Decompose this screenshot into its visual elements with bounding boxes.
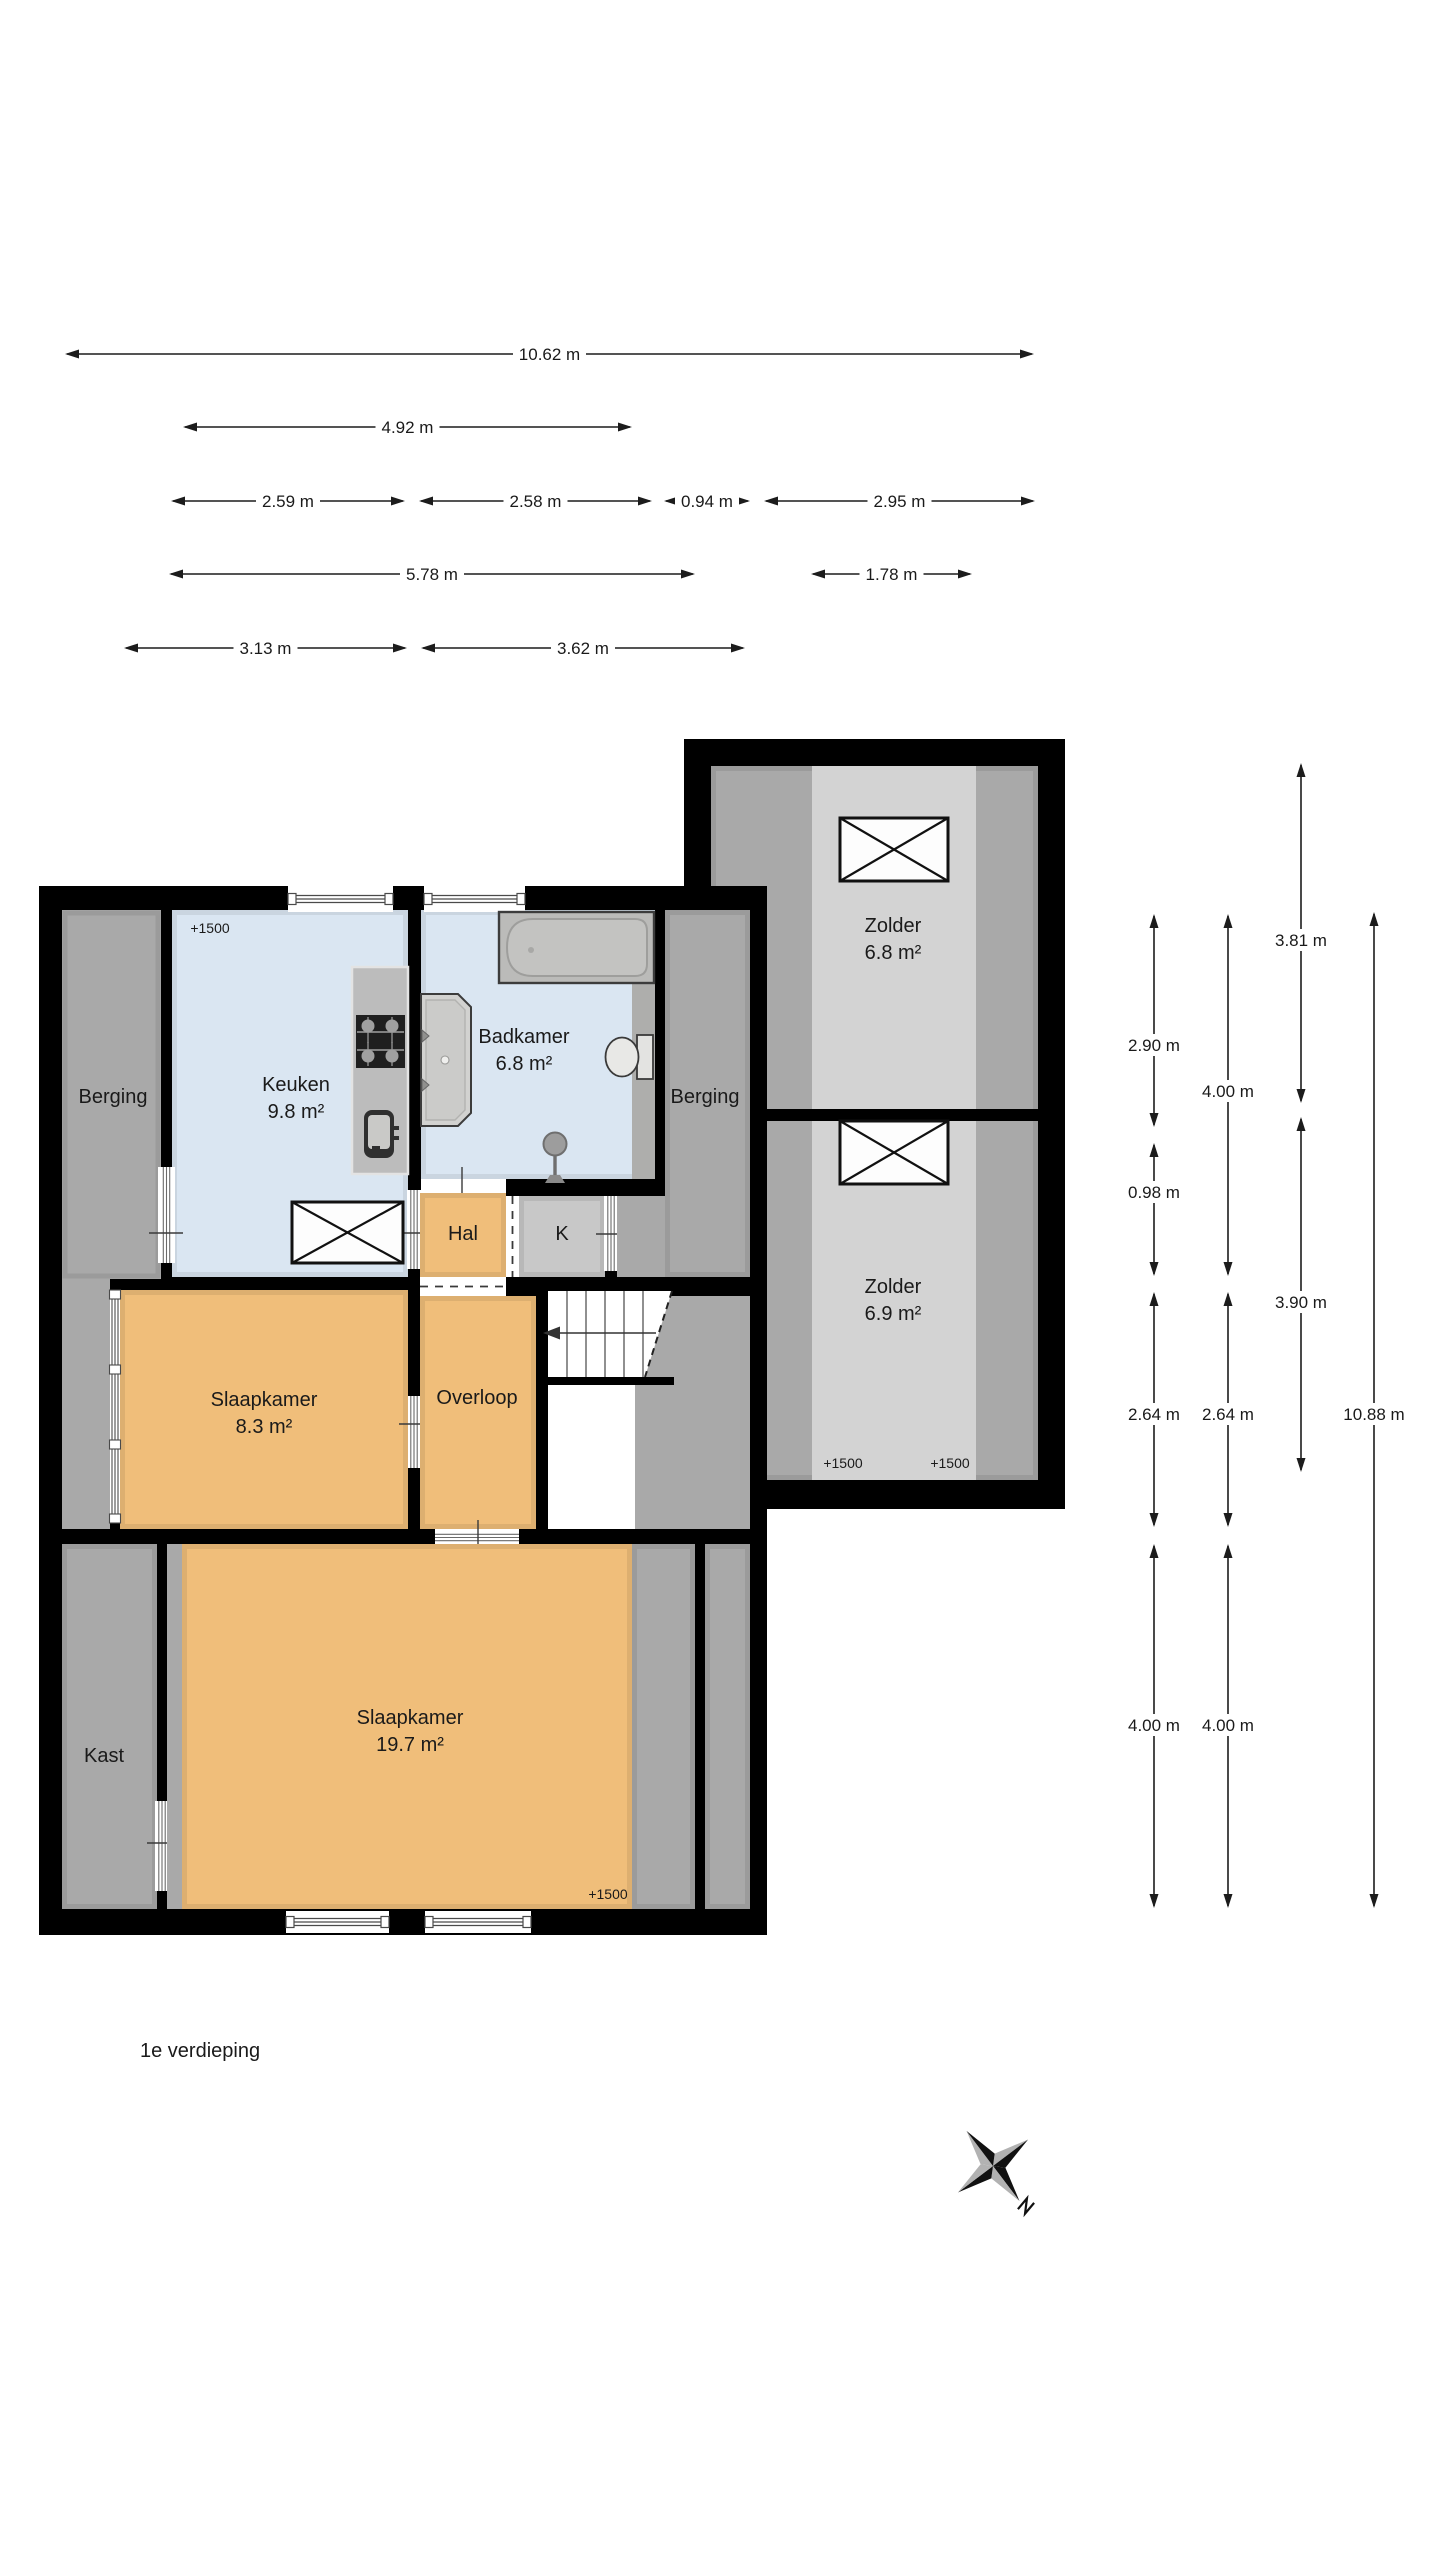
svg-text:4.00 m: 4.00 m xyxy=(1202,1716,1254,1735)
svg-text:Badkamer: Badkamer xyxy=(478,1026,569,1048)
svg-text:4.00 m: 4.00 m xyxy=(1128,1716,1180,1735)
svg-text:6.9 m²: 6.9 m² xyxy=(865,1303,922,1325)
svg-text:Slaapkamer: Slaapkamer xyxy=(357,1707,464,1729)
svg-text:3.90 m: 3.90 m xyxy=(1275,1293,1327,1312)
svg-text:10.88 m: 10.88 m xyxy=(1343,1405,1404,1424)
svg-text:Slaapkamer: Slaapkamer xyxy=(211,1389,318,1411)
svg-text:4.00 m: 4.00 m xyxy=(1202,1082,1254,1101)
svg-text:0.94 m: 0.94 m xyxy=(681,492,733,511)
svg-text:1.78 m: 1.78 m xyxy=(866,565,918,584)
svg-text:3.13 m: 3.13 m xyxy=(240,639,292,658)
svg-text:3.62 m: 3.62 m xyxy=(557,639,609,658)
svg-text:K: K xyxy=(555,1223,569,1245)
svg-text:8.3 m²: 8.3 m² xyxy=(236,1416,293,1438)
svg-text:+1500: +1500 xyxy=(588,1886,628,1902)
svg-text:5.78 m: 5.78 m xyxy=(406,565,458,584)
svg-text:+1500: +1500 xyxy=(823,1455,863,1471)
svg-text:3.81 m: 3.81 m xyxy=(1275,931,1327,950)
svg-text:+1500: +1500 xyxy=(930,1455,970,1471)
svg-text:10.62 m: 10.62 m xyxy=(519,345,580,364)
svg-text:4.92 m: 4.92 m xyxy=(382,418,434,437)
svg-text:2.59 m: 2.59 m xyxy=(262,492,314,511)
svg-text:2.58 m: 2.58 m xyxy=(510,492,562,511)
svg-text:+1500: +1500 xyxy=(190,920,230,936)
svg-text:6.8 m²: 6.8 m² xyxy=(865,942,922,964)
svg-text:2.95 m: 2.95 m xyxy=(874,492,926,511)
svg-text:Overloop: Overloop xyxy=(436,1387,517,1409)
svg-text:Keuken: Keuken xyxy=(262,1074,330,1096)
svg-text:Berging: Berging xyxy=(79,1086,148,1108)
svg-text:0.98 m: 0.98 m xyxy=(1128,1183,1180,1202)
svg-text:2.64 m: 2.64 m xyxy=(1128,1405,1180,1424)
svg-text:2.64 m: 2.64 m xyxy=(1202,1405,1254,1424)
svg-text:Berging: Berging xyxy=(671,1086,740,1108)
svg-text:2.90 m: 2.90 m xyxy=(1128,1036,1180,1055)
svg-text:Zolder: Zolder xyxy=(865,915,922,937)
svg-text:Zolder: Zolder xyxy=(865,1276,922,1298)
svg-text:9.8 m²: 9.8 m² xyxy=(268,1101,325,1123)
svg-text:6.8 m²: 6.8 m² xyxy=(496,1053,553,1075)
svg-text:1e verdieping: 1e verdieping xyxy=(140,2040,260,2062)
svg-text:Hal: Hal xyxy=(448,1223,478,1245)
svg-text:Kast: Kast xyxy=(84,1745,124,1767)
svg-text:19.7 m²: 19.7 m² xyxy=(376,1734,444,1756)
